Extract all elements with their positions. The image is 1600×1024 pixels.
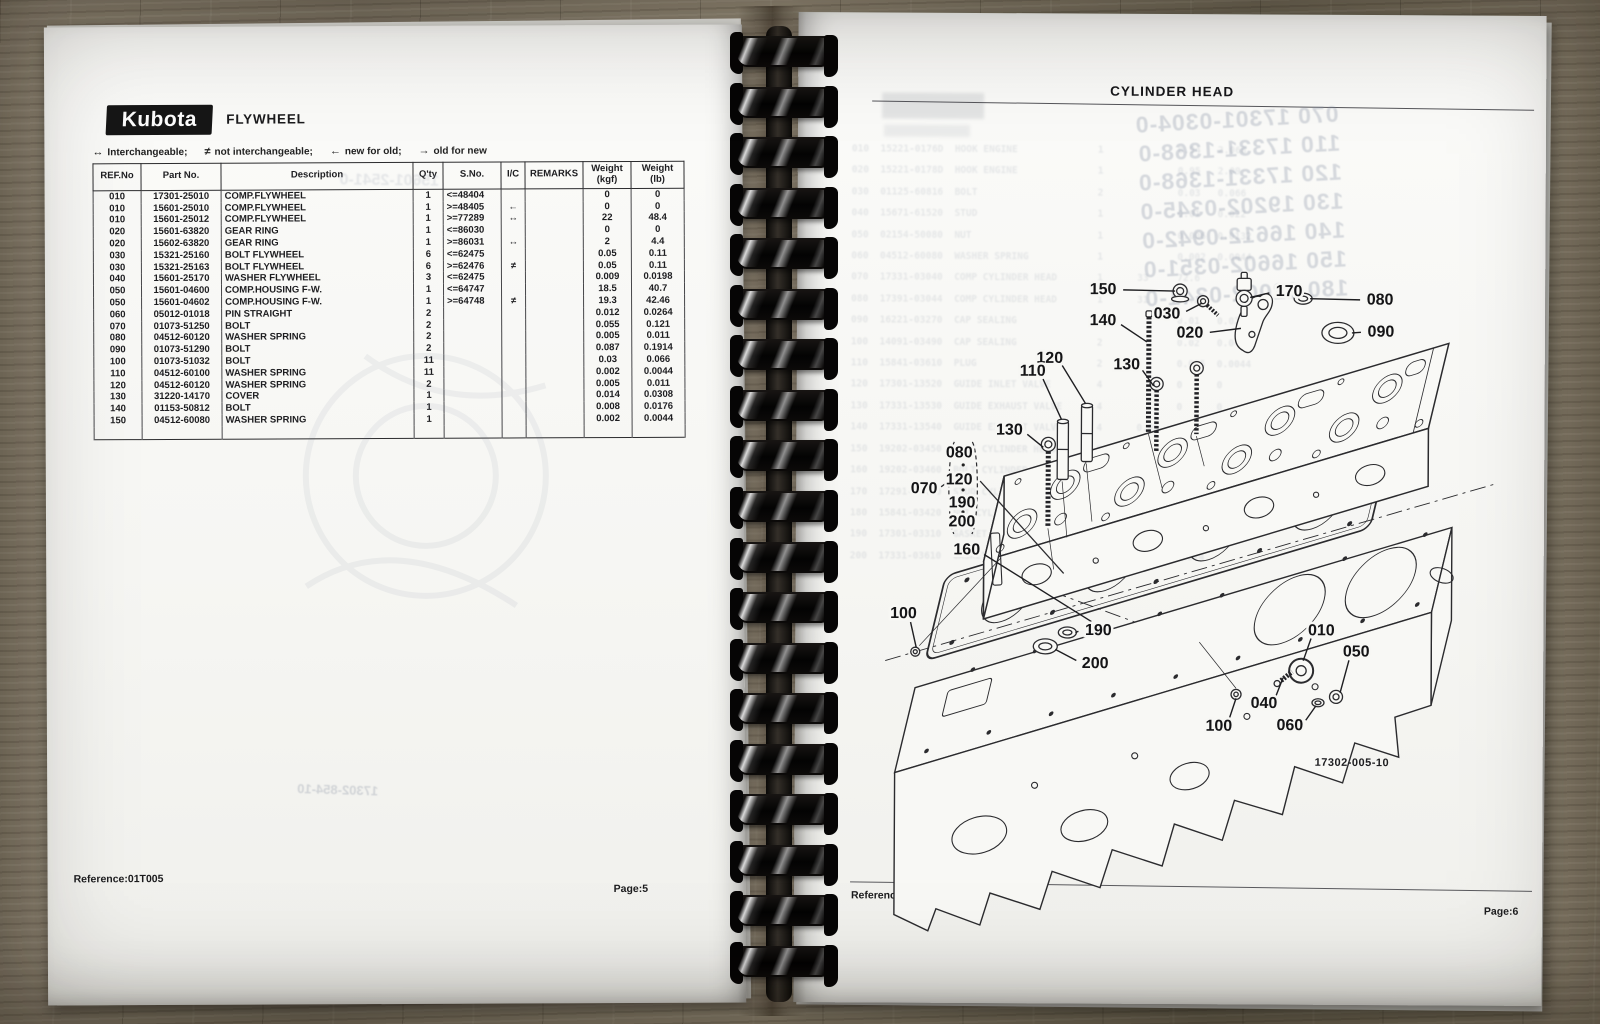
table-cell: 6: [413, 260, 443, 272]
comb-tooth: [734, 36, 834, 67]
figure-id: 17302-005-10: [1315, 757, 1390, 769]
table-cell: 0.011: [632, 330, 685, 342]
interchangeability-legend: ↔Interchangeable;≠not interchangeable;←n…: [92, 145, 487, 159]
table-cell: ≠: [501, 260, 525, 272]
table-cell: 030: [93, 262, 141, 274]
table-cell: 40.7: [631, 283, 684, 295]
table-cell: <=62475: [443, 248, 501, 260]
table-cell: 05012-01018: [142, 309, 222, 321]
table-cell: 15601-63820: [141, 226, 221, 238]
table-cell: 1: [413, 237, 443, 249]
table-cell: [525, 213, 583, 225]
table-header-cell: Q'ty: [413, 162, 443, 189]
callout-label: 100: [1205, 718, 1232, 735]
table-cell: 01153-50812: [142, 403, 222, 415]
table-cell: 0.0176: [632, 401, 685, 413]
table-cell: [525, 236, 583, 248]
table-cell: 020: [93, 226, 141, 238]
callout-label: 200: [1082, 655, 1109, 672]
table-cell: 01073-51032: [142, 356, 222, 368]
table-cell: 060: [94, 309, 142, 321]
table-cell: 0.05: [583, 260, 631, 272]
table-header-cell: I/C: [501, 162, 525, 189]
comb-tooth: [734, 339, 834, 370]
table-cell: <=48404: [443, 189, 501, 202]
table-cell: 0.0044: [632, 413, 685, 425]
callout-label: 100: [890, 605, 917, 622]
callout-label: 080: [946, 444, 973, 461]
table-cell: 15601-04602: [142, 297, 222, 309]
left-page-number: Page:5: [614, 883, 648, 895]
callout-label: 200: [949, 513, 976, 530]
table-cell: 0: [631, 224, 684, 236]
table-cell: 22: [583, 212, 631, 224]
comb-tooth: [734, 794, 834, 825]
table-cell: [525, 189, 583, 202]
comb-tooth: [734, 643, 834, 674]
comb-tooth: [734, 289, 834, 320]
table-cell: 130: [94, 391, 142, 403]
callout-leader: [1121, 325, 1147, 342]
table-cell: GEAR RING: [221, 225, 413, 238]
comb-tooth: [734, 390, 834, 421]
table-cell: 150: [94, 415, 142, 427]
table-cell: 6: [413, 249, 443, 261]
callout-label: 060: [1276, 717, 1303, 734]
callout-label: 140: [1090, 312, 1117, 329]
callout-leader: [910, 622, 916, 648]
comb-tooth: [734, 188, 834, 219]
table-cell: COMP.FLYWHEEL: [221, 213, 413, 226]
bleed-through-sketch: [215, 275, 637, 697]
table-cell: 020: [93, 238, 141, 250]
table-cell: 040: [93, 274, 141, 286]
legend-label: not interchangeable;: [214, 146, 312, 157]
table-cell: 010: [93, 203, 141, 215]
table-cell: 15321-25160: [141, 250, 221, 262]
comb-tooth: [734, 137, 834, 168]
table-cell: COMP.FLYWHEEL: [221, 189, 413, 202]
table-cell: >=62476: [443, 260, 501, 272]
callout-label: 130: [1113, 356, 1140, 373]
table-header-cell: S.No.: [443, 162, 501, 189]
table-header-cell: Description: [221, 162, 413, 190]
table-cell: [525, 260, 583, 272]
callout-label: 120: [946, 471, 973, 488]
callout-label: 070: [911, 480, 938, 497]
table-cell: 0.1914: [632, 342, 685, 354]
table-cell: 0.066: [632, 354, 685, 366]
callout-label: 030: [1154, 305, 1181, 322]
table-cell: 070: [94, 321, 142, 333]
table-cell: BOLT FLYWHEEL: [221, 261, 413, 274]
table-cell: >=48405: [443, 201, 501, 213]
legend-item: ≠not interchangeable;: [204, 145, 312, 157]
callout-leader: [1027, 434, 1043, 447]
table-cell: 0.0308: [632, 389, 685, 401]
table-cell: 0: [583, 224, 631, 236]
table-cell: 4.4: [631, 236, 684, 248]
table-cell: 120: [94, 380, 142, 392]
table-cell: 2: [583, 236, 631, 248]
comb-tooth: [734, 542, 834, 573]
table-header-cell: REMARKS: [525, 162, 583, 189]
legend-label: old for new: [433, 146, 486, 157]
table-cell: ↔: [501, 213, 525, 225]
table-header-cell: Weight (kgf): [583, 161, 631, 188]
legend-item: →old for new: [418, 145, 486, 157]
callout-label: 050: [1343, 643, 1370, 660]
legend-symbol: ↔: [92, 146, 103, 158]
table-cell: 0.0044: [632, 366, 685, 378]
table-cell: 48.4: [631, 212, 684, 224]
table-cell: [501, 189, 525, 201]
table-cell: 15601-25012: [141, 214, 221, 226]
callout-leader: [1352, 332, 1361, 333]
table-header-cell: Part No.: [141, 163, 221, 190]
table-cell: 0.11: [631, 248, 684, 260]
table-cell: 0.121: [632, 318, 685, 330]
callout-label: 090: [1368, 324, 1395, 341]
table-cell: 0: [631, 200, 684, 212]
table-cell: 04512-60120: [142, 332, 222, 344]
legend-symbol: ←: [330, 145, 341, 157]
cylinder-head-diagram: 1501400300201700800901201101301301601001…: [793, 12, 1546, 1006]
table-cell: 0: [631, 188, 684, 201]
section-title: FLYWHEEL: [226, 111, 305, 126]
table-cell: ↔: [501, 236, 525, 248]
kubota-logo-text: Kubota: [121, 108, 197, 132]
comb-tooth: [734, 592, 834, 623]
table-cell: 15602-63820: [141, 238, 221, 250]
table-cell: 15321-25163: [141, 261, 221, 273]
callout-label: 010: [1308, 622, 1335, 639]
callout-leader: [1186, 303, 1202, 311]
table-cell: 15601-25170: [141, 273, 221, 285]
table-cell: 0.0264: [632, 307, 685, 319]
table-cell: 01073-51290: [142, 344, 222, 356]
table-cell: 0: [583, 188, 631, 201]
left-page-reference: Reference:01T005: [74, 873, 164, 885]
table-cell: 110: [94, 368, 142, 380]
comb-tooth: [734, 440, 834, 471]
callout-label: 020: [1177, 325, 1204, 342]
table-cell: >=77289: [443, 213, 501, 225]
table-header-cell: REF.No: [93, 164, 141, 191]
table-cell: 0.05: [583, 248, 631, 260]
table-cell: GEAR RING: [221, 237, 413, 250]
table-cell: 010: [93, 215, 141, 227]
legend-item: ←new for old;: [330, 145, 402, 157]
callout-label: 110: [1020, 363, 1046, 380]
table-cell: 04512-60080: [142, 415, 222, 427]
legend-symbol: →: [418, 145, 429, 157]
table-cell: 090: [94, 344, 142, 356]
legend-symbol: ≠: [204, 146, 210, 158]
comb-tooth: [734, 744, 834, 775]
table-cell: [501, 225, 525, 237]
left-page: Kubota FLYWHEEL ↔Interchangeable;≠not in…: [44, 24, 746, 1005]
table-cell: 0: [583, 201, 631, 213]
table-cell: [525, 224, 583, 236]
comb-tooth: [734, 895, 834, 926]
table-cell: >=86031: [443, 237, 501, 249]
callout-label: 190: [1085, 622, 1112, 639]
comb-tooth: [734, 946, 834, 977]
callout-label: 040: [1251, 695, 1278, 712]
table-cell: 1: [413, 225, 443, 237]
callout-label: 160: [953, 541, 980, 558]
table-cell: 1: [413, 189, 443, 201]
table-cell: COMP.FLYWHEEL: [221, 202, 413, 215]
table-cell: 030: [93, 250, 141, 262]
table-cell: 04512-60120: [142, 379, 222, 391]
book-photo-scene: Kubota FLYWHEEL ↔Interchangeable;≠not in…: [0, 0, 1600, 1024]
callout-label: 080: [1367, 292, 1394, 309]
table-cell: 140: [94, 403, 142, 415]
callout-label: 130: [996, 422, 1023, 439]
table-cell: 15601-04600: [141, 285, 221, 297]
legend-label: Interchangeable;: [107, 147, 187, 158]
table-cell: 0.11: [631, 259, 684, 271]
comb-tooth: [734, 845, 834, 876]
table-cell: [525, 201, 583, 213]
callout-label: 150: [1090, 281, 1117, 298]
bleed-through-figure-id: 17302-854-10: [297, 781, 378, 798]
table-cell: [525, 248, 583, 260]
table-cell: ←: [501, 201, 525, 213]
table-cell: 0.0198: [631, 271, 684, 283]
table-cell: 01073-51250: [142, 320, 222, 332]
table-header-cell: Weight (lb): [631, 161, 684, 188]
table-cell: 17301-25010: [141, 190, 221, 203]
table-cell: 1: [413, 201, 443, 213]
callout-leader: [1310, 299, 1360, 300]
table-cell: BOLT FLYWHEEL: [221, 249, 413, 262]
callout-leader: [1043, 379, 1062, 419]
table-cell: <=86030: [443, 225, 501, 237]
kubota-logo: Kubota: [106, 105, 213, 135]
table-cell: [501, 248, 525, 260]
table-cell: 1: [413, 213, 443, 225]
callout-leader: [1062, 365, 1086, 403]
table-cell: 100: [94, 356, 142, 368]
callout-leader: [1123, 290, 1175, 291]
table-cell: 0.011: [632, 377, 685, 389]
table-cell: 04512-60100: [142, 368, 222, 380]
table-cell: 15601-25010: [141, 202, 221, 214]
comb-tooth: [734, 87, 834, 118]
comb-tooth: [734, 238, 834, 269]
table-cell: 050: [94, 297, 142, 309]
legend-label: new for old;: [345, 146, 402, 157]
table-cell: 080: [94, 333, 142, 345]
table-cell: 42.46: [632, 295, 685, 307]
table-cell: 31220-14170: [142, 391, 222, 403]
callout-label: 190: [949, 494, 976, 511]
comb-tooth: [734, 693, 834, 724]
comb-tooth: [734, 491, 834, 522]
table-cell: 010: [93, 190, 141, 203]
table-cell: 050: [93, 285, 141, 297]
callout-label: 170: [1276, 283, 1303, 300]
legend-item: ↔Interchangeable;: [92, 146, 187, 158]
right-page: CYLINDER HEAD 070 17301-0304-0110 17331-…: [793, 12, 1546, 1006]
